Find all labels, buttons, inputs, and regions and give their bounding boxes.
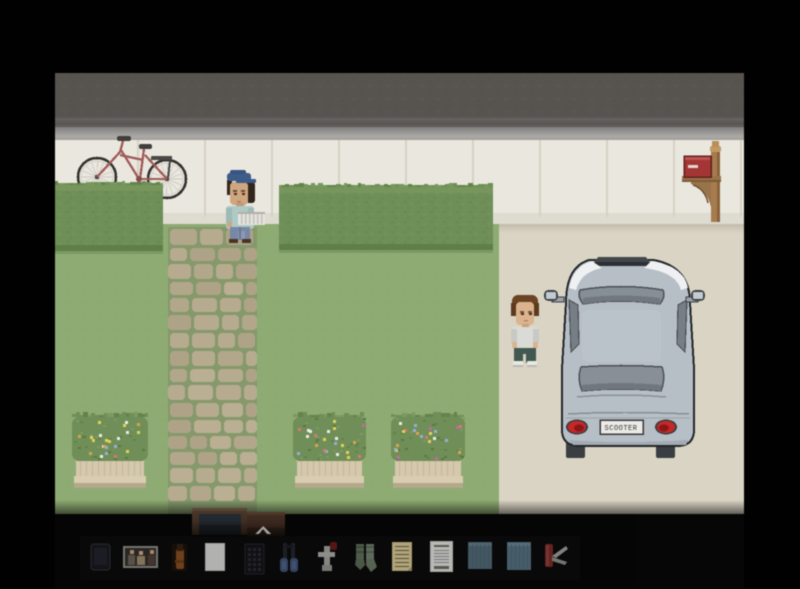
svg-text:SCOOTER: SCOOTER <box>605 425 638 433</box>
